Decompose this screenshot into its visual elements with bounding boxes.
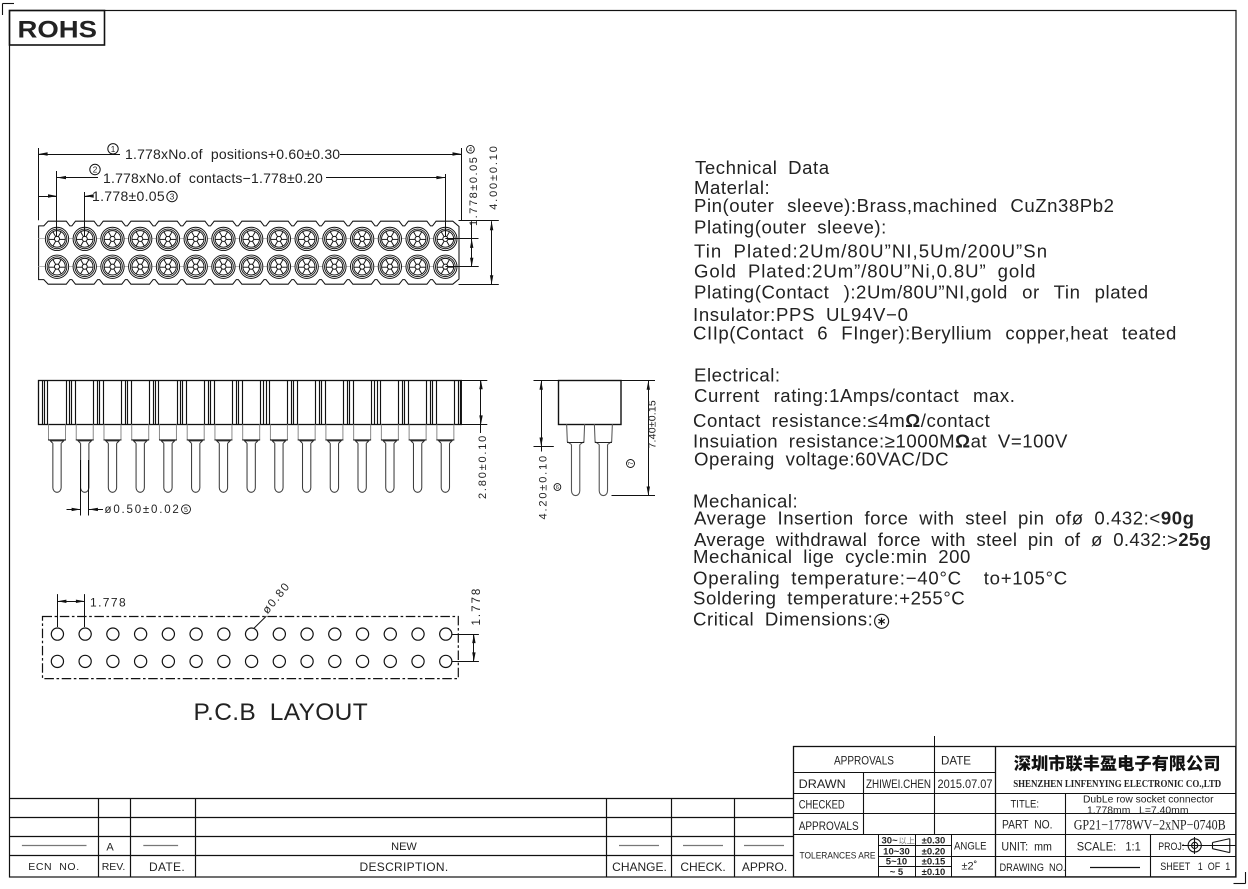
svg-text:1.778±0.05: 1.778±0.05	[468, 156, 480, 226]
svg-text:±0.10: ±0.10	[922, 867, 946, 878]
svg-text:±2˚: ±2˚	[962, 861, 978, 873]
svg-text:UNIT: mm: UNIT: mm	[1001, 842, 1052, 854]
svg-text:~ 5: ~ 5	[890, 867, 904, 878]
svg-text:SHEET 1 OF 1: SHEET 1 OF 1	[1160, 861, 1230, 873]
svg-text:1.778xNo.of contacts−1.778±0.: 1.778xNo.of contacts−1.778±0.20	[103, 170, 323, 186]
svg-text:Gold Plated:2Um”/80U”Ni,0.8U”: Gold Plated:2Um”/80U”Ni,0.8U” gold	[694, 261, 1036, 282]
svg-text:SCALE: 1:1: SCALE: 1:1	[1077, 842, 1141, 854]
svg-text:4.20±0.10: 4.20±0.10	[537, 454, 549, 520]
svg-text:Mechanical lige cycle:min 200: Mechanical lige cycle:min 200	[693, 546, 971, 567]
svg-text:ROHS: ROHS	[18, 17, 98, 44]
svg-text:DRAWN: DRAWN	[799, 779, 846, 791]
svg-text:REV.: REV.	[102, 861, 126, 873]
svg-text:±0.30: ±0.30	[922, 836, 946, 847]
svg-text:Critical Dimensions:: Critical Dimensions:	[693, 609, 873, 630]
svg-text:CHANGE.: CHANGE.	[612, 860, 667, 874]
svg-text:TITLE:: TITLE:	[1011, 799, 1040, 811]
svg-text:1.778±0.05: 1.778±0.05	[92, 188, 165, 204]
svg-text:Operaing voltage:60VAC/DC: Operaing voltage:60VAC/DC	[694, 449, 949, 470]
svg-text:Soldering temperature:+255°C: Soldering temperature:+255°C	[693, 587, 965, 608]
svg-text:PROJ:: PROJ:	[1158, 841, 1184, 853]
svg-text:ø0.50±0.02: ø0.50±0.02	[105, 504, 181, 516]
svg-text:1.778xNo.of positions+0.60±0.: 1.778xNo.of positions+0.60±0.30	[125, 146, 340, 162]
svg-text:CHECK.: CHECK.	[680, 860, 725, 874]
svg-text:CHECKED: CHECKED	[799, 800, 845, 812]
svg-text:TOLERANCES ARE: TOLERANCES ARE	[800, 851, 876, 862]
svg-text:NEW: NEW	[391, 841, 417, 853]
svg-text:1.778: 1.778	[471, 587, 483, 626]
svg-text:PART NO.: PART NO.	[1002, 820, 1053, 832]
svg-text:1.778: 1.778	[90, 596, 127, 610]
svg-text:7: 7	[628, 461, 635, 465]
svg-text:DESCRIPTION.: DESCRIPTION.	[360, 860, 449, 874]
svg-text:5: 5	[184, 507, 188, 514]
svg-text:Pin(outer sleeve):Brass,machin: Pin(outer sleeve):Brass,machined CuZn38P…	[694, 195, 1115, 216]
svg-text:APPROVALS: APPROVALS	[834, 756, 894, 768]
svg-text:Current rating:1Amps/contact m: Current rating:1Amps/contact max.	[694, 385, 1015, 406]
svg-text:2: 2	[93, 166, 98, 175]
svg-text:Plating(outer sleeve):: Plating(outer sleeve):	[694, 216, 887, 237]
svg-text:ANGLE: ANGLE	[954, 841, 987, 853]
svg-text:A: A	[106, 842, 114, 854]
svg-text:CIIp(Contact 6 FInger):Berylli: CIIp(Contact 6 FInger):Beryllium copper,…	[693, 322, 1177, 343]
svg-text:Contact resistance:≤4mΩ/contac: Contact resistance:≤4mΩ/contact	[693, 410, 991, 431]
svg-text:ZHIWEI.CHEN: ZHIWEI.CHEN	[866, 779, 931, 791]
svg-text:4.00±0.10: 4.00±0.10	[488, 144, 500, 210]
svg-text:Average Insertion force with s: Average Insertion force with steel pin o…	[694, 508, 1195, 529]
svg-text:1.778mm L=7.40mm: 1.778mm L=7.40mm	[1087, 804, 1189, 816]
svg-text:Plating(Contact ):2Um/80U”NI,g: Plating(Contact ):2Um/80U”NI,gold or Tin…	[694, 281, 1149, 302]
svg-text:SHENZHEN LINFENYING ELECTRONIC: SHENZHEN LINFENYING ELECTRONIC CO.,LTD	[1013, 779, 1221, 790]
svg-text:Operaling temperature:−40°C t: Operaling temperature:−40°C to+105°C	[693, 568, 1068, 589]
svg-text:2.80±0.10: 2.80±0.10	[477, 434, 489, 499]
svg-text:1: 1	[111, 145, 116, 154]
svg-text:3: 3	[170, 193, 175, 202]
svg-text:4: 4	[469, 147, 473, 154]
svg-text:ECN NO.: ECN NO.	[28, 861, 79, 873]
svg-text:Tin Plated:2Um/80U”NI,5Um/200U: Tin Plated:2Um/80U”NI,5Um/200U”Sn	[694, 241, 1048, 262]
svg-text:DATE.: DATE.	[149, 860, 185, 874]
svg-text:Electrical:: Electrical:	[694, 364, 781, 385]
svg-text:6: 6	[556, 485, 559, 491]
svg-text:7.40±0.15: 7.40±0.15	[647, 400, 659, 448]
svg-text:30~: 30~	[882, 836, 899, 847]
svg-text:APPROVALS: APPROVALS	[799, 821, 859, 833]
svg-text:Technical Data: Technical Data	[695, 157, 830, 178]
svg-text:GP21−1778WV−2xNP−0740B: GP21−1778WV−2xNP−0740B	[1074, 818, 1226, 834]
svg-text:2015.07.07: 2015.07.07	[938, 779, 993, 791]
svg-text:DRAWING NO.: DRAWING NO.	[1000, 862, 1066, 874]
svg-text:DATE: DATE	[941, 756, 971, 768]
svg-text:P.C.B LAYOUT: P.C.B LAYOUT	[194, 699, 369, 726]
svg-text:APPRO.: APPRO.	[742, 860, 787, 874]
